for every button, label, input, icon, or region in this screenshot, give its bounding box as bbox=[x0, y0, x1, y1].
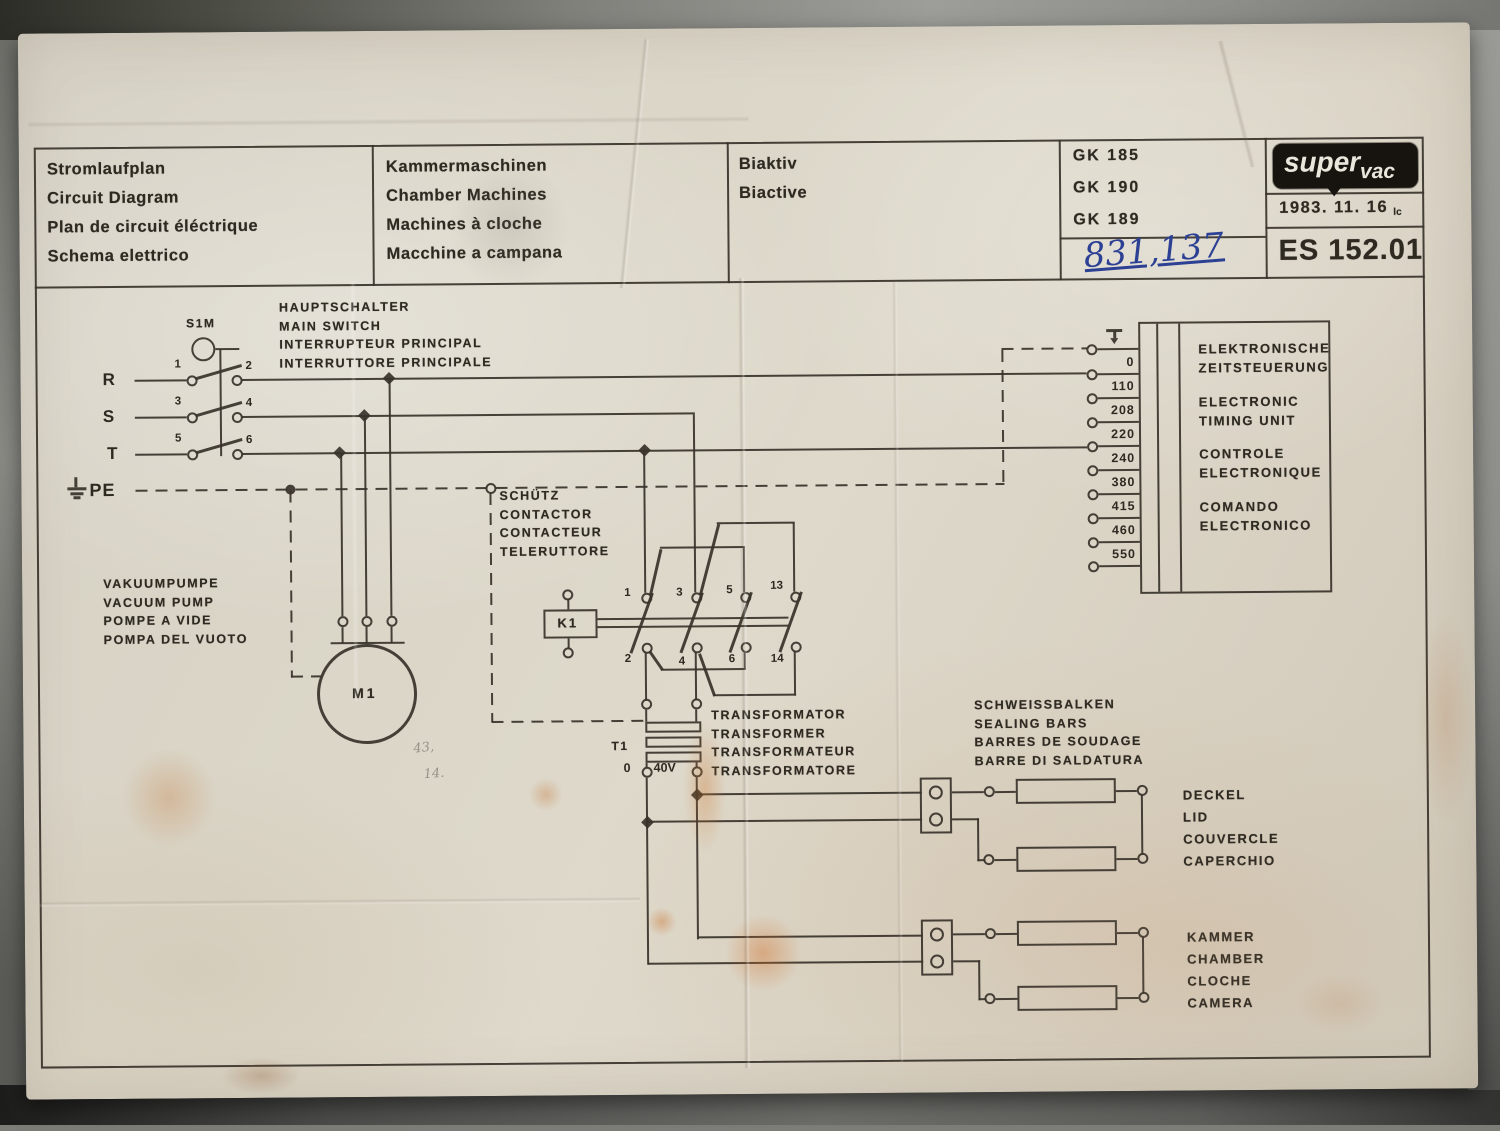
timing-terminal-gnd bbox=[1086, 344, 1097, 355]
model-gk185: GK 185 bbox=[1073, 147, 1140, 166]
transformer-terminal-40v bbox=[692, 766, 703, 777]
coil-terminal-bottom bbox=[563, 647, 574, 658]
contactor-terminal-14 bbox=[791, 642, 802, 653]
timing-unit-label-de: ELEKTRONISCHE ZEITSTEUERUNG bbox=[1198, 338, 1330, 377]
main-switch-label: HAUPTSCHALTER MAIN SWITCH INTERRUPTEUR P… bbox=[279, 297, 492, 373]
vacuum-pump-label: VAKUUMPUMPE VACUUM PUMP POMPE A VIDE POM… bbox=[103, 574, 248, 649]
lid-top-wire-c bbox=[1116, 790, 1137, 793]
motor-terminal-stub bbox=[366, 627, 369, 643]
model-gk190: GK 190 bbox=[1073, 179, 1140, 198]
lid-block-out-h bbox=[952, 818, 979, 821]
supervac-logo: super vac bbox=[1273, 143, 1418, 189]
chamber-bot-wire-b bbox=[995, 998, 1017, 1001]
lid-sealing-bar-1 bbox=[1016, 778, 1116, 804]
motor-terminal-stub bbox=[342, 627, 345, 643]
chamber-block-out-h2 bbox=[978, 998, 986, 1000]
lid-return-v bbox=[1141, 795, 1144, 855]
coil-stub-top bbox=[567, 599, 569, 609]
transformer-terminal-0 bbox=[642, 767, 653, 778]
main-switch-id-label: S1M bbox=[186, 314, 216, 333]
contactor-terminal-4 bbox=[692, 642, 703, 653]
chamber-top-wire-b bbox=[996, 933, 1017, 936]
contactor-num-4: 4 bbox=[679, 655, 686, 667]
lid-block-out-v bbox=[977, 818, 980, 861]
chamber-label: KAMMER CHAMBER CLOCHE CAMERA bbox=[1187, 926, 1265, 1015]
timing-tap-208: 208 bbox=[1095, 403, 1135, 417]
pencil-note-1: 43, bbox=[413, 739, 435, 756]
timing-tap-415: 415 bbox=[1096, 499, 1136, 513]
chamber-bot-wire-c bbox=[1117, 997, 1138, 1000]
bridge-4-14-v bbox=[794, 652, 797, 696]
pencil-note-2: 14. bbox=[423, 766, 445, 783]
pe-label: PE bbox=[89, 480, 115, 501]
transformer-terminal-in2 bbox=[691, 698, 702, 709]
model-gk189: GK 189 bbox=[1073, 211, 1140, 230]
transformer-tap-0: 0 bbox=[624, 761, 631, 775]
photo-scene: Stromlaufplan Circuit Diagram Plan de ci… bbox=[0, 0, 1500, 1125]
contactor-label: SCHÜTZ CONTACTOR CONTACTEUR TELERUTTORE bbox=[499, 486, 609, 561]
schematic-drawing: Stromlaufplan Circuit Diagram Plan de ci… bbox=[0, 0, 1500, 1131]
timing-wire-460 bbox=[1099, 541, 1140, 544]
timing-wire-gnd bbox=[1097, 348, 1138, 351]
transformer-core bbox=[645, 736, 701, 747]
transformer-terminal-in1 bbox=[641, 699, 652, 710]
lid-label: DECKEL LID COUVERCLE CAPERCHIO bbox=[1183, 784, 1280, 873]
wire-s-feed bbox=[135, 416, 187, 419]
title-machine-type: Kammermaschinen Chamber Machines Machine… bbox=[386, 151, 563, 268]
wire-pe-to-motor-h bbox=[291, 675, 321, 678]
timing-tap-0: 0 bbox=[1094, 355, 1134, 369]
coil-terminal-top bbox=[562, 589, 573, 600]
chamber-block-terminal-bottom bbox=[930, 954, 944, 968]
earth-icon-bar1 bbox=[67, 487, 86, 490]
motor-id-label: M1 bbox=[352, 684, 378, 703]
transformer-id-label: T1 bbox=[611, 737, 628, 756]
switch-contact-6: 6 bbox=[246, 434, 253, 446]
transformer-stub-in2 bbox=[695, 709, 697, 721]
switch-contact-5: 5 bbox=[175, 432, 182, 444]
contactor-num-6: 6 bbox=[729, 653, 736, 665]
phase-r-label: R bbox=[102, 370, 115, 390]
chamber-block-terminal-top bbox=[930, 927, 944, 941]
lid-top-wire-b bbox=[995, 791, 1016, 794]
title-identification: Stromlaufplan Circuit Diagram Plan de ci… bbox=[47, 154, 259, 272]
transformer-winding-primary bbox=[645, 721, 701, 732]
timing-tap-220: 220 bbox=[1095, 427, 1135, 441]
timing-wire-415 bbox=[1099, 517, 1140, 520]
contactor-terminal-6 bbox=[741, 642, 752, 653]
contactor-num-1: 1 bbox=[624, 587, 631, 599]
ground-icon-arrow bbox=[1110, 338, 1118, 344]
transformer-stub-in1 bbox=[645, 710, 647, 722]
timing-tap-460: 460 bbox=[1096, 523, 1136, 537]
timing-wire-240 bbox=[1098, 469, 1139, 472]
lid-bot-wire-b bbox=[994, 859, 1016, 862]
timing-wire-550 bbox=[1099, 565, 1140, 568]
ground-icon-stem bbox=[1113, 331, 1116, 338]
timing-wire-110 bbox=[1098, 397, 1139, 400]
contactor-num-5: 5 bbox=[726, 584, 733, 596]
transformer-tap-40v: 40V bbox=[654, 761, 676, 775]
chamber-top-wire-c bbox=[1117, 932, 1138, 935]
bridge-1-5-v bbox=[743, 547, 746, 592]
logo-text-vac: vac bbox=[1360, 160, 1395, 184]
chamber-bar1-left-terminal bbox=[985, 928, 996, 939]
transformer-label: TRANSFORMATOR TRANSFORMER TRANSFORMATEUR… bbox=[711, 705, 856, 780]
chamber-top-wire-a bbox=[953, 933, 985, 936]
motor-terminal bbox=[361, 616, 372, 627]
timing-unit-label-fr: CONTROLE ELECTRONIQUE bbox=[1199, 443, 1322, 482]
wire-contact4-out bbox=[695, 652, 698, 700]
lid-block-terminal-bottom bbox=[929, 812, 943, 826]
earth-icon-bar3 bbox=[73, 496, 80, 499]
lid-bot-wire-c bbox=[1116, 858, 1137, 861]
timing-wire-208 bbox=[1098, 421, 1139, 424]
contactor-num-14: 14 bbox=[771, 653, 784, 665]
timing-wire-380 bbox=[1098, 493, 1139, 496]
contactor-num-2: 2 bbox=[625, 653, 632, 665]
phase-t-label: T bbox=[107, 444, 119, 464]
switch-contact-3: 3 bbox=[175, 395, 182, 407]
timing-wire-0 bbox=[1098, 373, 1139, 376]
contactor-num-3: 3 bbox=[676, 587, 683, 599]
lid-block-terminal-top bbox=[929, 785, 943, 799]
timing-tap-110: 110 bbox=[1095, 379, 1135, 393]
chamber-sealing-bar-1 bbox=[1017, 920, 1117, 946]
wire-contact2-out bbox=[645, 653, 648, 701]
switch-operator-circle bbox=[191, 337, 215, 361]
timing-tap-550: 550 bbox=[1096, 547, 1136, 561]
timing-terminal-550 bbox=[1088, 561, 1099, 572]
timing-wire-220 bbox=[1098, 445, 1139, 448]
bridge-2-6-v bbox=[744, 652, 747, 669]
chamber-block-out-h bbox=[953, 960, 980, 963]
wire-t-feed bbox=[135, 453, 187, 456]
motor-terminal-stub bbox=[391, 627, 394, 643]
chamber-sealing-bar-2 bbox=[1017, 985, 1117, 1011]
contactor-id-label: K1 bbox=[557, 614, 578, 633]
drawing-date: 1983. 11. 16 bbox=[1279, 198, 1388, 217]
drawing-number: ES 152.01 bbox=[1278, 233, 1423, 268]
timing-unit-label-it: COMANDO ELECTRONICO bbox=[1200, 497, 1313, 536]
timing-tap-380: 380 bbox=[1095, 475, 1135, 489]
chamber-return-v bbox=[1142, 937, 1145, 994]
phase-s-label: S bbox=[103, 407, 116, 427]
switch-contact-2: 2 bbox=[245, 360, 252, 372]
lid-bar2-right-terminal bbox=[1137, 853, 1148, 864]
earth-icon-bar2 bbox=[70, 492, 83, 495]
sealing-bars-label: SCHWEISSBALKEN SEALING BARS BARRES DE SO… bbox=[974, 695, 1144, 770]
drawing-date-initials: lc bbox=[1393, 204, 1401, 223]
earth-icon-stem bbox=[74, 477, 77, 487]
wire-r-feed bbox=[135, 379, 187, 382]
lid-block-out-h2 bbox=[977, 859, 985, 861]
motor-terminal bbox=[337, 616, 348, 627]
contactor-num-13: 13 bbox=[770, 580, 783, 592]
chamber-block-out-v bbox=[978, 960, 981, 1000]
motor-terminal bbox=[386, 616, 397, 627]
paper-sheet: Stromlaufplan Circuit Diagram Plan de ci… bbox=[18, 22, 1478, 1099]
switch-contact-1: 1 bbox=[174, 358, 181, 370]
switch-contact-4: 4 bbox=[246, 397, 253, 409]
lid-bar1-left-terminal bbox=[984, 786, 995, 797]
timing-unit-label-en: ELECTRONIC TIMING UNIT bbox=[1199, 392, 1300, 431]
logo-text-super: super bbox=[1284, 146, 1360, 179]
lid-top-wire-a bbox=[952, 791, 984, 794]
timing-tap-240: 240 bbox=[1095, 451, 1135, 465]
chamber-bar2-right-terminal bbox=[1138, 992, 1149, 1003]
lid-sealing-bar-2 bbox=[1016, 846, 1116, 872]
title-variant: Biaktiv Biactive bbox=[739, 150, 808, 209]
logo-notch bbox=[1327, 187, 1341, 196]
